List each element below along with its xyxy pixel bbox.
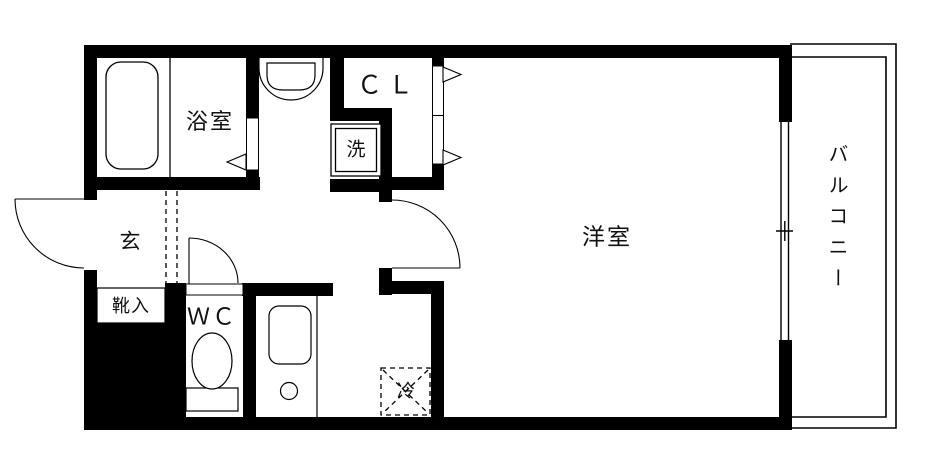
room-swing-door — [392, 200, 460, 268]
room-label-entrance: 玄 — [120, 232, 141, 253]
room-label-closet: ＣＬ — [357, 74, 419, 99]
room-label-washer: 洗 — [346, 141, 365, 160]
wall-kitchen-east — [431, 281, 444, 417]
washbasin-outer — [259, 58, 323, 100]
washbasin — [259, 58, 323, 100]
entrance-swing-door — [15, 199, 84, 268]
closet-bifold-doors — [432, 66, 461, 165]
entrance-door-arc — [15, 199, 84, 268]
room-label-wc: ＷＣ — [187, 306, 237, 329]
wall-top — [84, 45, 792, 58]
wall-bottom — [84, 417, 790, 430]
wall-left-upper — [84, 45, 97, 200]
wc-door-sill — [186, 284, 243, 295]
toilet — [186, 333, 238, 411]
burner-circle — [281, 383, 298, 400]
wall-bath-bottom — [84, 177, 260, 190]
toilet-bowl — [192, 333, 232, 389]
floor-plan: 浴室 ＣＬ 洗 玄 靴入 ＷＣ 冷 洋室 バルコニー — [0, 0, 951, 461]
bathtub — [106, 62, 158, 169]
room-label-shoe-cabinet: 靴入 — [112, 297, 150, 315]
room-label-western-room: 洋室 — [582, 226, 632, 249]
wall-wc-right — [243, 283, 256, 417]
washbasin-bowl — [267, 63, 315, 90]
bathroom-fixtures — [106, 58, 170, 177]
wall-bath-right-upper — [246, 45, 259, 118]
sliding-window — [776, 122, 793, 340]
kitchen-counter — [269, 296, 317, 417]
wall-dead-space — [84, 323, 186, 430]
kitchen-sink — [269, 306, 311, 364]
room-label-bathroom: 浴室 — [186, 111, 234, 133]
wall-west-upper — [379, 177, 392, 202]
wc-door-arc — [189, 238, 238, 283]
cl-door-triangle-upper — [443, 67, 461, 82]
wall-west-lower — [379, 268, 392, 295]
bath-door-strip — [247, 118, 259, 170]
wall-cl-door-stub-bottom — [432, 163, 444, 179]
room-label-balcony: バルコニー — [826, 144, 846, 299]
wall-washroom-cl — [330, 45, 344, 110]
wc-swing-door — [189, 238, 238, 284]
cl-door-triangle-lower — [443, 150, 461, 165]
room-door-arc — [392, 200, 460, 268]
toilet-tank — [186, 388, 238, 411]
room-label-refrigerator: 冷 — [397, 382, 415, 400]
floor-plan-drawing — [0, 0, 951, 461]
bath-door-triangle — [227, 154, 246, 170]
